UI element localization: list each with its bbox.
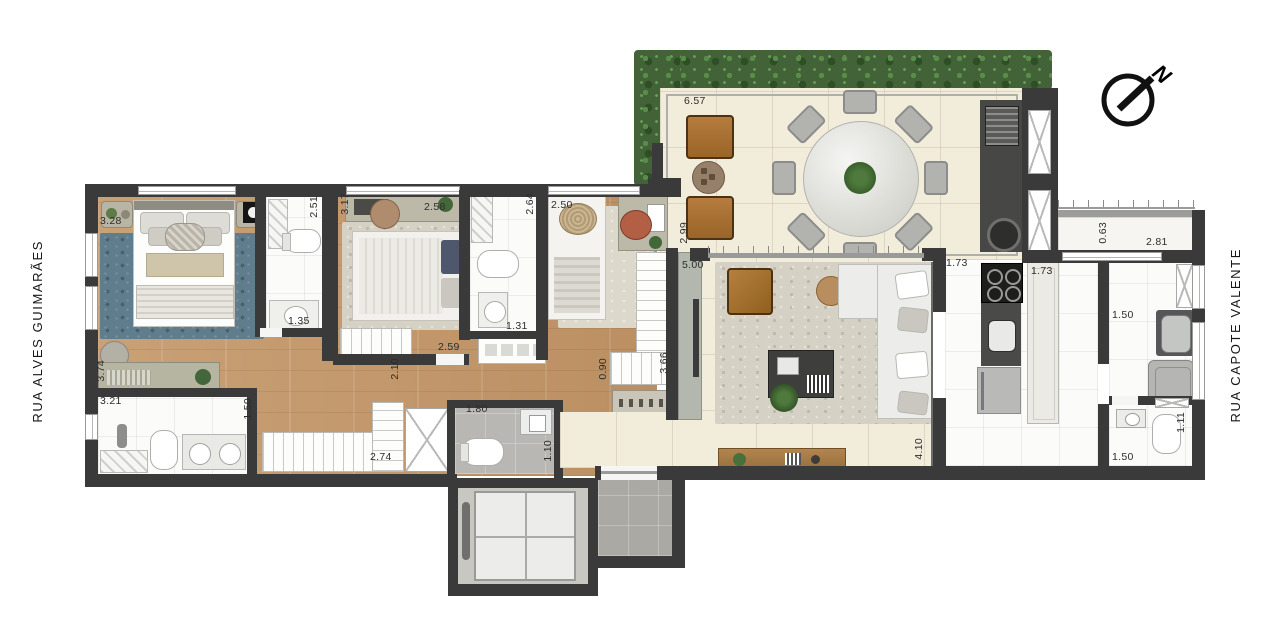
entry-threshold (601, 471, 657, 474)
dim-bedroom2-width: 2.58 (424, 202, 446, 213)
double-bed (133, 200, 235, 327)
dim-ledge-width: 2.81 (1146, 237, 1168, 248)
wall (447, 400, 563, 408)
sliding-door-ticks (708, 246, 924, 255)
dim-suite1-depth: 3.74 (96, 360, 107, 382)
wall (1098, 250, 1109, 364)
desk-chair-red (620, 210, 652, 240)
ledge-ticks (1058, 200, 1195, 209)
grill-grate (985, 106, 1019, 146)
window (1028, 190, 1051, 252)
window (85, 414, 98, 440)
dim-bath2-depth: 2.64 (525, 193, 536, 215)
dim-bedroom2-lower: 2.59 (438, 342, 460, 353)
wall (595, 466, 1205, 480)
wc-sink (1116, 409, 1146, 428)
dim-master-bath-depth: 1.50 (243, 398, 254, 420)
tv-panel (678, 252, 702, 420)
wall (85, 474, 457, 487)
wall (666, 248, 678, 420)
window (1176, 264, 1193, 308)
kitchen-sink (988, 320, 1016, 352)
dim-hall-width: 2.10 (390, 358, 401, 380)
wall (672, 478, 685, 560)
elevator-shaft (448, 478, 598, 596)
bed2 (352, 231, 468, 321)
wall (933, 250, 946, 312)
dim-living-depth: 4.10 (914, 438, 925, 460)
dim-lavabo-depth: 1.10 (543, 440, 554, 462)
wall (447, 400, 455, 478)
window (548, 186, 640, 195)
window (85, 286, 98, 330)
north-letter: N (1148, 59, 1175, 89)
wall (1098, 404, 1109, 470)
table-plant (844, 162, 876, 194)
wall (459, 190, 470, 340)
armchair (727, 268, 773, 315)
tv (693, 299, 699, 377)
hedge-top (672, 50, 1052, 90)
elevator-car (474, 491, 576, 581)
toilet (285, 229, 321, 253)
dim-bedroom2-depth: 3.17 (340, 193, 351, 215)
grill-sink (987, 218, 1021, 252)
street-label-right: RUA CAPOTE VALENTE (1228, 248, 1243, 423)
toilet (150, 430, 178, 470)
washbasin (478, 292, 508, 328)
wall (255, 195, 266, 335)
fridge (977, 367, 1021, 414)
lavabo-basin (520, 409, 552, 435)
dim-kitchen-counter: 1.73 (1031, 266, 1053, 277)
window (1192, 322, 1205, 400)
wall (459, 331, 547, 339)
dim-bedroom3-wardrobe: 3.66 (659, 352, 670, 374)
wall (85, 184, 98, 487)
window (85, 233, 98, 277)
terrace-side-table (692, 161, 725, 194)
entry-floor (560, 412, 710, 468)
hall-floor (598, 480, 672, 556)
dining-chair (924, 161, 948, 195)
dim-closet-width: 2.74 (370, 452, 392, 463)
sliding-door (708, 255, 924, 258)
dim-laundry-bottom: 1.50 (1112, 452, 1134, 463)
dim-lavabo-width: 1.80 (466, 404, 488, 415)
door-gap (1112, 396, 1138, 405)
dimension-line (931, 262, 933, 466)
kitchen-counter (981, 302, 1021, 366)
dim-terrace-depth: 2.99 (679, 222, 690, 244)
window (1192, 265, 1205, 309)
floor-plan-canvas: RUA ALVES GUIMARÃES RUA CAPOTE VALENTE N (0, 0, 1280, 644)
toilet (477, 250, 519, 278)
bed-throw (136, 285, 234, 319)
door-gap (436, 354, 464, 365)
dim-living-width: 5.00 (682, 260, 704, 271)
dim-living-wall: 1.73 (946, 258, 968, 269)
plant (770, 384, 798, 412)
kitchen-island (1027, 262, 1059, 424)
window (138, 186, 236, 195)
window (1062, 252, 1162, 261)
dim-master-bath-width: 3.21 (100, 396, 122, 407)
lounge-chair (686, 196, 734, 240)
wall (933, 398, 946, 470)
pillow-navy (441, 240, 461, 274)
laundry-tank (1156, 310, 1194, 356)
compass-icon: N (1095, 55, 1175, 135)
accent-pillow (165, 223, 205, 251)
double-vanity (182, 434, 246, 470)
cooktop (981, 263, 1023, 303)
dim-bath2-width: 1.31 (506, 321, 528, 332)
shower (471, 195, 493, 243)
window (346, 186, 460, 195)
door-gap (260, 328, 282, 337)
dim-bedroom3-width: 2.50 (551, 200, 573, 211)
ledge-rail (1058, 210, 1195, 217)
shower-column (117, 424, 127, 448)
dining-chair (772, 161, 796, 195)
wall (652, 143, 663, 191)
wall (598, 556, 685, 568)
dim-bath1-depth: 2.51 (309, 196, 320, 218)
single-bed (548, 196, 606, 320)
dim-suite1-width: 3.28 (100, 216, 122, 227)
dim-terrace-width: 6.57 (684, 96, 706, 107)
shower (100, 450, 148, 473)
dim-ledge-depth: 0.63 (1098, 222, 1109, 244)
toilet (462, 438, 504, 466)
grill-counter (980, 100, 1022, 252)
dim-laundry-top: 1.50 (1112, 310, 1134, 321)
window (1155, 398, 1189, 408)
dim-wc-depth: 1.11 (1176, 412, 1187, 433)
dim-bath1-width: 1.35 (288, 316, 310, 327)
window (1028, 110, 1051, 174)
desk-chair (370, 199, 400, 229)
street-label-left: RUA ALVES GUIMARÃES (30, 240, 45, 423)
dim-bedroom3-lower: 0.90 (598, 358, 609, 380)
elevator-handle (462, 502, 470, 560)
lounge-chair (686, 115, 734, 159)
shower-box (405, 408, 449, 472)
dining-chair (843, 90, 877, 114)
